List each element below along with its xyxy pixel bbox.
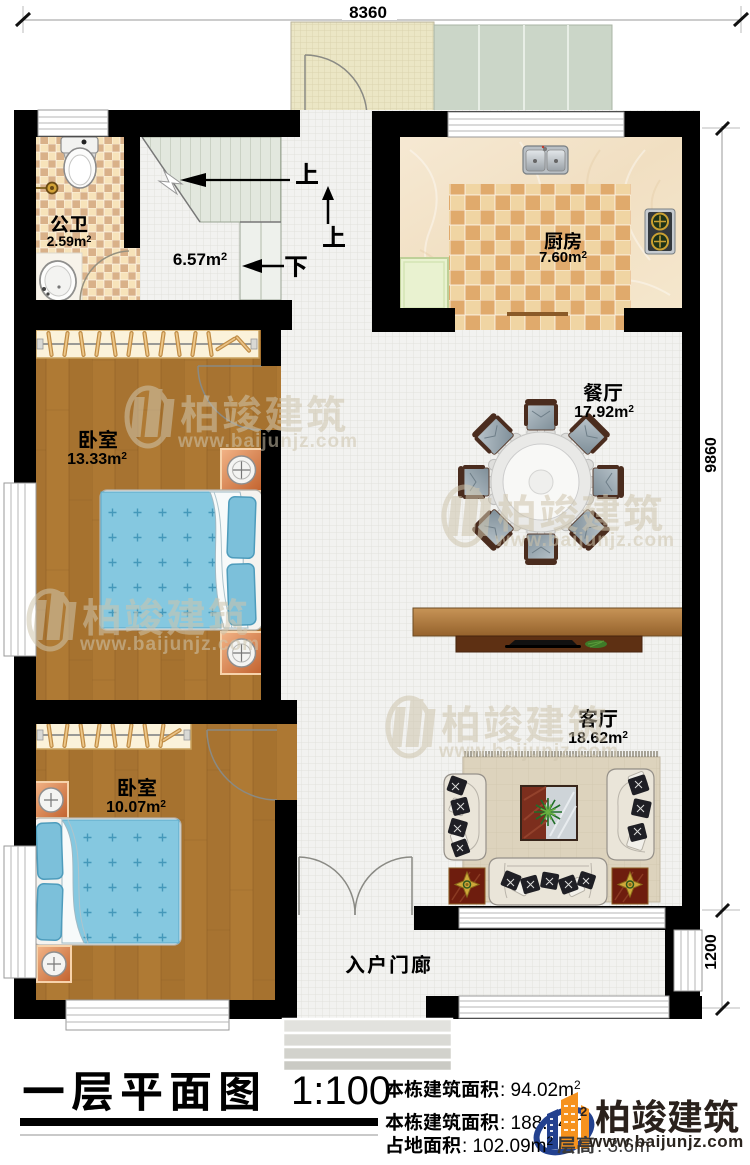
svg-text:7.60m2: 7.60m2 [539, 249, 588, 266]
svg-text:2.59m2: 2.59m2 [47, 233, 92, 249]
svg-text:9860: 9860 [703, 437, 720, 473]
svg-text:10.07m2: 10.07m2 [106, 799, 166, 816]
svg-text:17.92m2: 17.92m2 [574, 404, 634, 421]
svg-text:8360: 8360 [349, 3, 387, 22]
svg-text:: 102.09m2: : 102.09m2 [462, 1134, 554, 1157]
svg-text:6.57m2: 6.57m2 [173, 250, 227, 269]
svg-text:13.33m2: 13.33m2 [67, 451, 127, 468]
svg-text:2: 2 [580, 1104, 587, 1119]
svg-text:1200: 1200 [703, 934, 720, 970]
svg-text:1:100: 1:100 [291, 1069, 391, 1113]
svg-text:www.baijunjz.com: www.baijunjz.com [588, 1132, 744, 1151]
